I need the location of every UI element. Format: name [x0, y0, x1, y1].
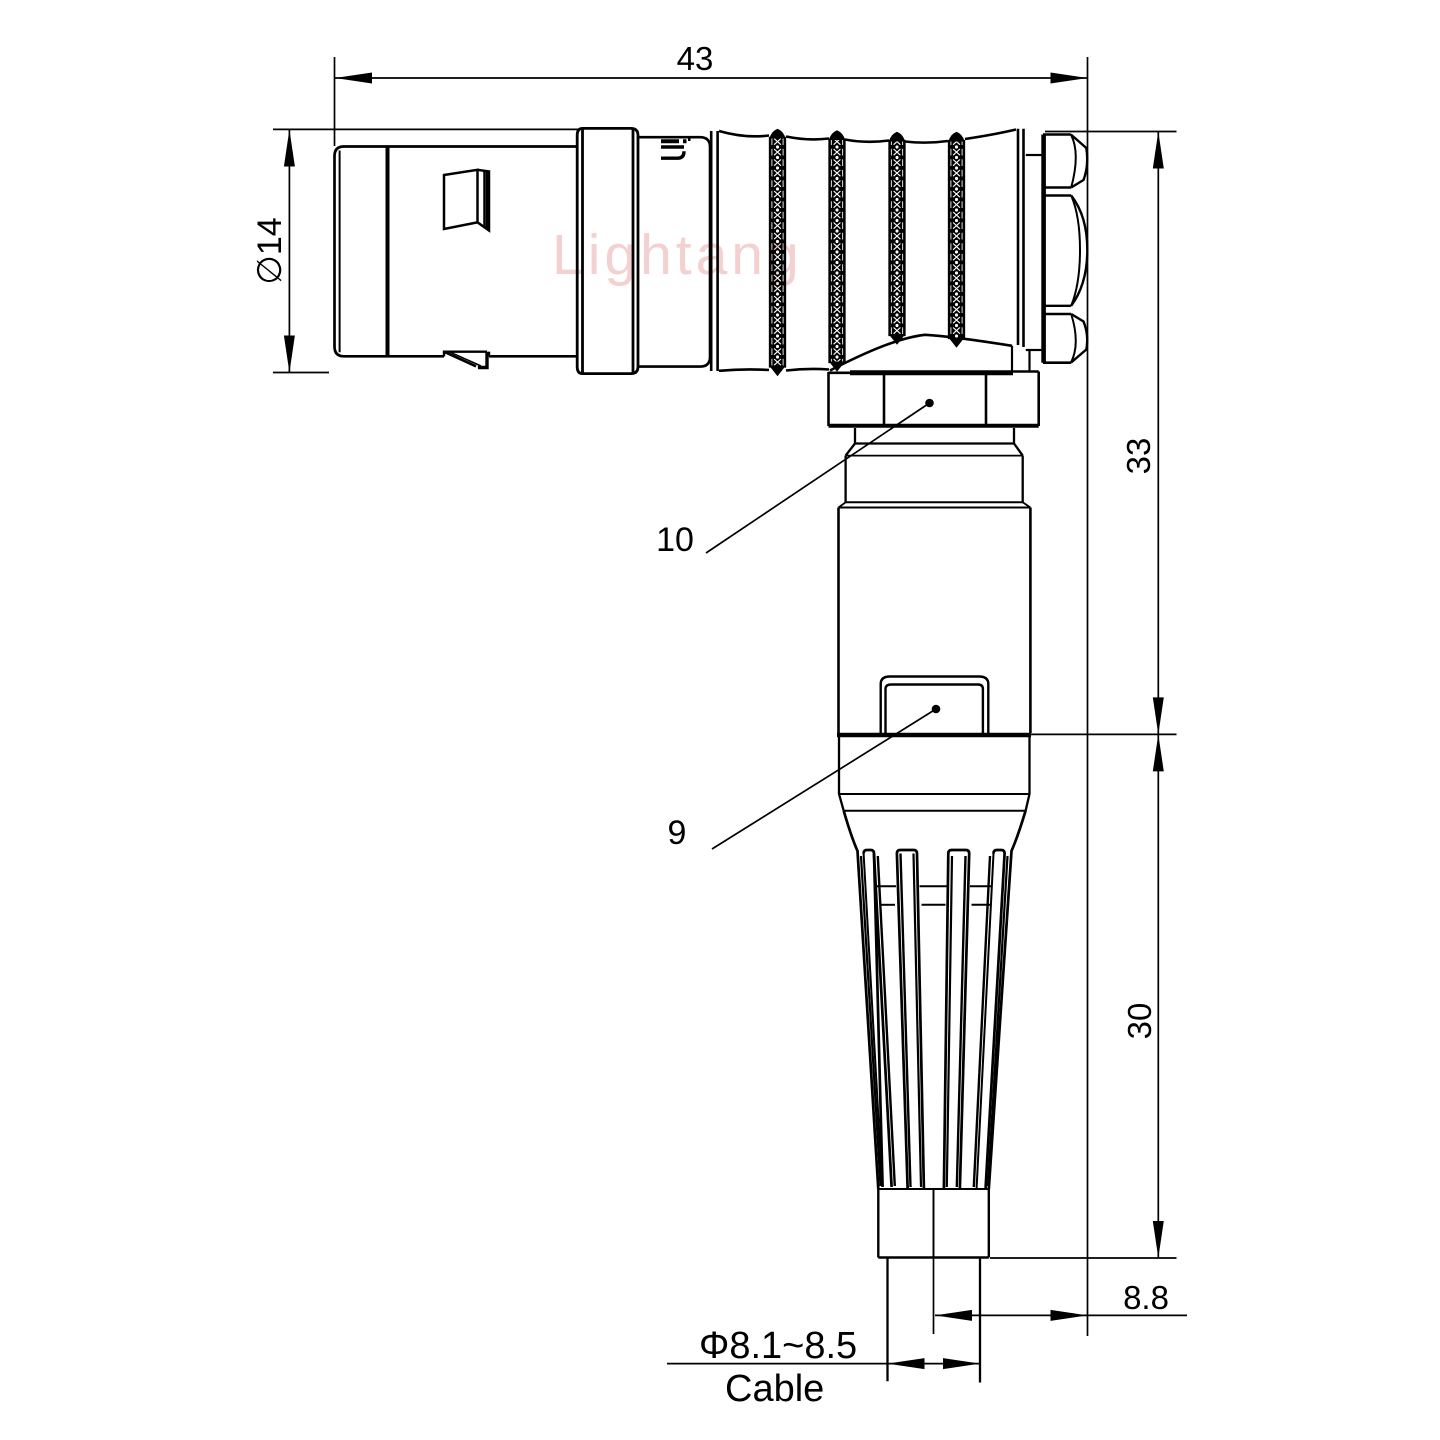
svg-text:9: 9	[668, 814, 687, 852]
svg-text:∅14: ∅14	[251, 217, 289, 284]
svg-text:43: 43	[677, 40, 714, 77]
svg-text:30: 30	[1121, 1003, 1158, 1040]
svg-text:33: 33	[1120, 438, 1157, 475]
svg-text:8.8: 8.8	[1123, 1279, 1169, 1316]
svg-text:Φ8.1~8.5: Φ8.1~8.5	[699, 1325, 857, 1367]
svg-text:10: 10	[656, 521, 694, 559]
svg-text:Cable: Cable	[725, 1368, 824, 1410]
